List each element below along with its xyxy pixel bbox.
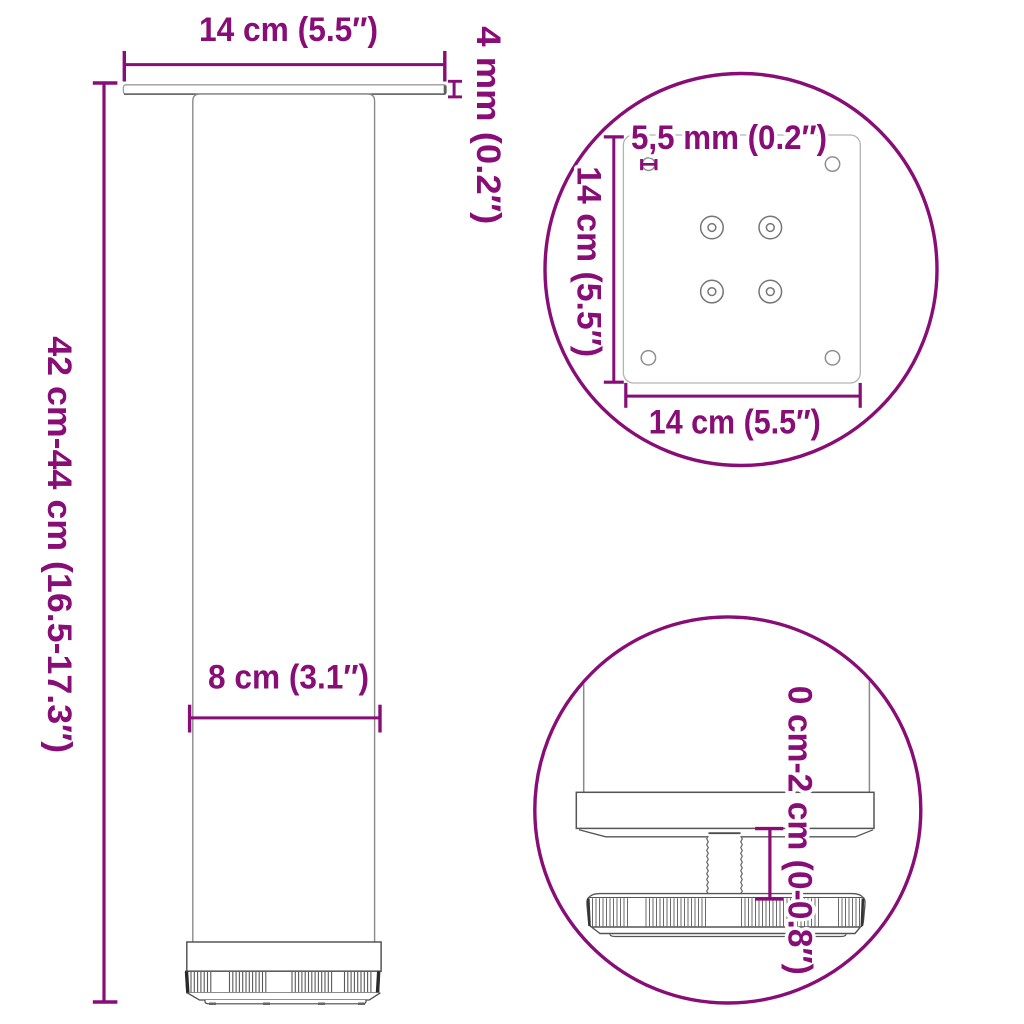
svg-text:14 cm (5.5″): 14 cm (5.5″)	[649, 403, 821, 441]
svg-text:42 cm-44 cm (16.5-17.3″): 42 cm-44 cm (16.5-17.3″)	[40, 336, 78, 753]
svg-text:14 cm (5.5″): 14 cm (5.5″)	[570, 166, 608, 357]
svg-text:4 mm (0.2″): 4 mm (0.2″)	[469, 26, 507, 224]
svg-text:5,5 mm (0.2″): 5,5 mm (0.2″)	[631, 119, 827, 157]
svg-text:8 cm (3.1″): 8 cm (3.1″)	[208, 659, 369, 697]
svg-text:0 cm-2 cm (0-0.8″): 0 cm-2 cm (0-0.8″)	[781, 686, 819, 975]
svg-text:14 cm (5.5″): 14 cm (5.5″)	[199, 11, 378, 49]
